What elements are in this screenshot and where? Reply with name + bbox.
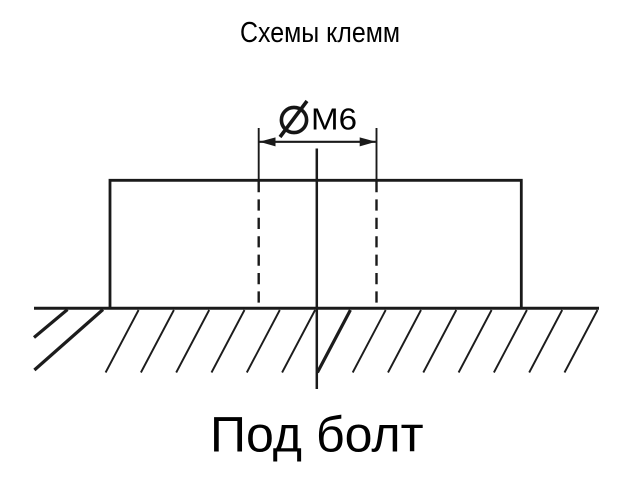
svg-text:М6: М6 xyxy=(311,102,357,136)
svg-text:Под болт: Под болт xyxy=(210,407,424,463)
svg-text:Схемы клемм: Схемы клемм xyxy=(240,17,400,49)
